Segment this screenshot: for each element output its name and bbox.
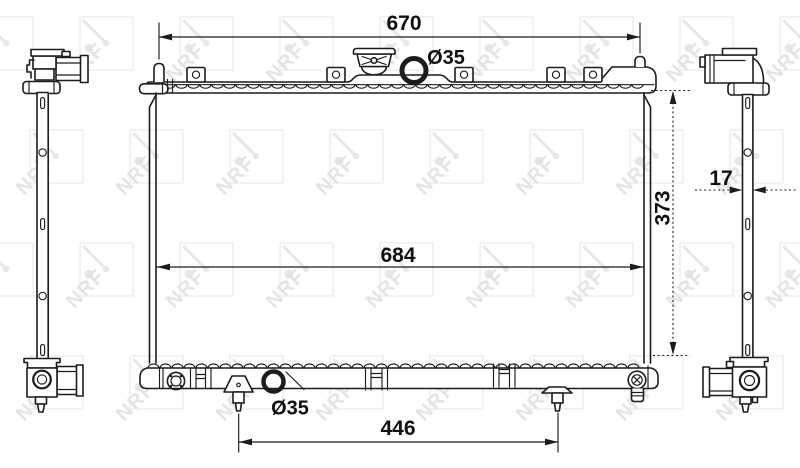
core [150,93,651,363]
dim-profile-thickness-label: 17 [709,167,732,190]
dim-mount-spacing-label: 446 [380,417,415,440]
watermark-tile [512,130,583,200]
outlet-diameter-label: Ø35 [271,398,309,420]
watermark-tile [262,17,333,87]
drawing-canvas: NRF [0,0,800,468]
watermark-tile [162,243,233,313]
watermark-tile [312,130,383,200]
watermark-tile [0,17,33,87]
right-top-fitting [700,49,769,96]
left-profile-bar [37,93,48,361]
mounting-pin-right [635,57,645,68]
right-profile-bar [743,95,753,360]
watermark-tile [212,130,283,200]
watermark-tile [762,17,800,87]
left-profile-view [23,50,88,413]
dim-core-width-label: 684 [380,244,415,267]
watermark-tile [612,130,683,200]
inlet-diameter-label: Ø35 [427,47,465,69]
watermark-tile [762,243,800,313]
right-profile-view [700,49,769,413]
watermark-tile [62,243,133,313]
dim-overall-height-label: 373 [652,190,675,225]
watermark-tile [462,243,533,313]
watermark-tile [562,243,633,313]
dim-overall-width-label: 670 [386,12,421,35]
watermark-tile [0,243,33,313]
dim-core-width: 684 [157,244,643,270]
watermark-tile [312,356,383,426]
radiator-technical-drawing: NRF [0,0,800,468]
label-outlet-diameter: Ø35 [271,398,309,420]
watermark-tile [412,130,483,200]
mounting-pin-left [154,64,164,83]
left-end-cap [140,84,169,94]
watermark-tile [112,130,183,200]
label-inlet-diameter: Ø35 [427,47,465,69]
watermark-tile [262,243,333,313]
